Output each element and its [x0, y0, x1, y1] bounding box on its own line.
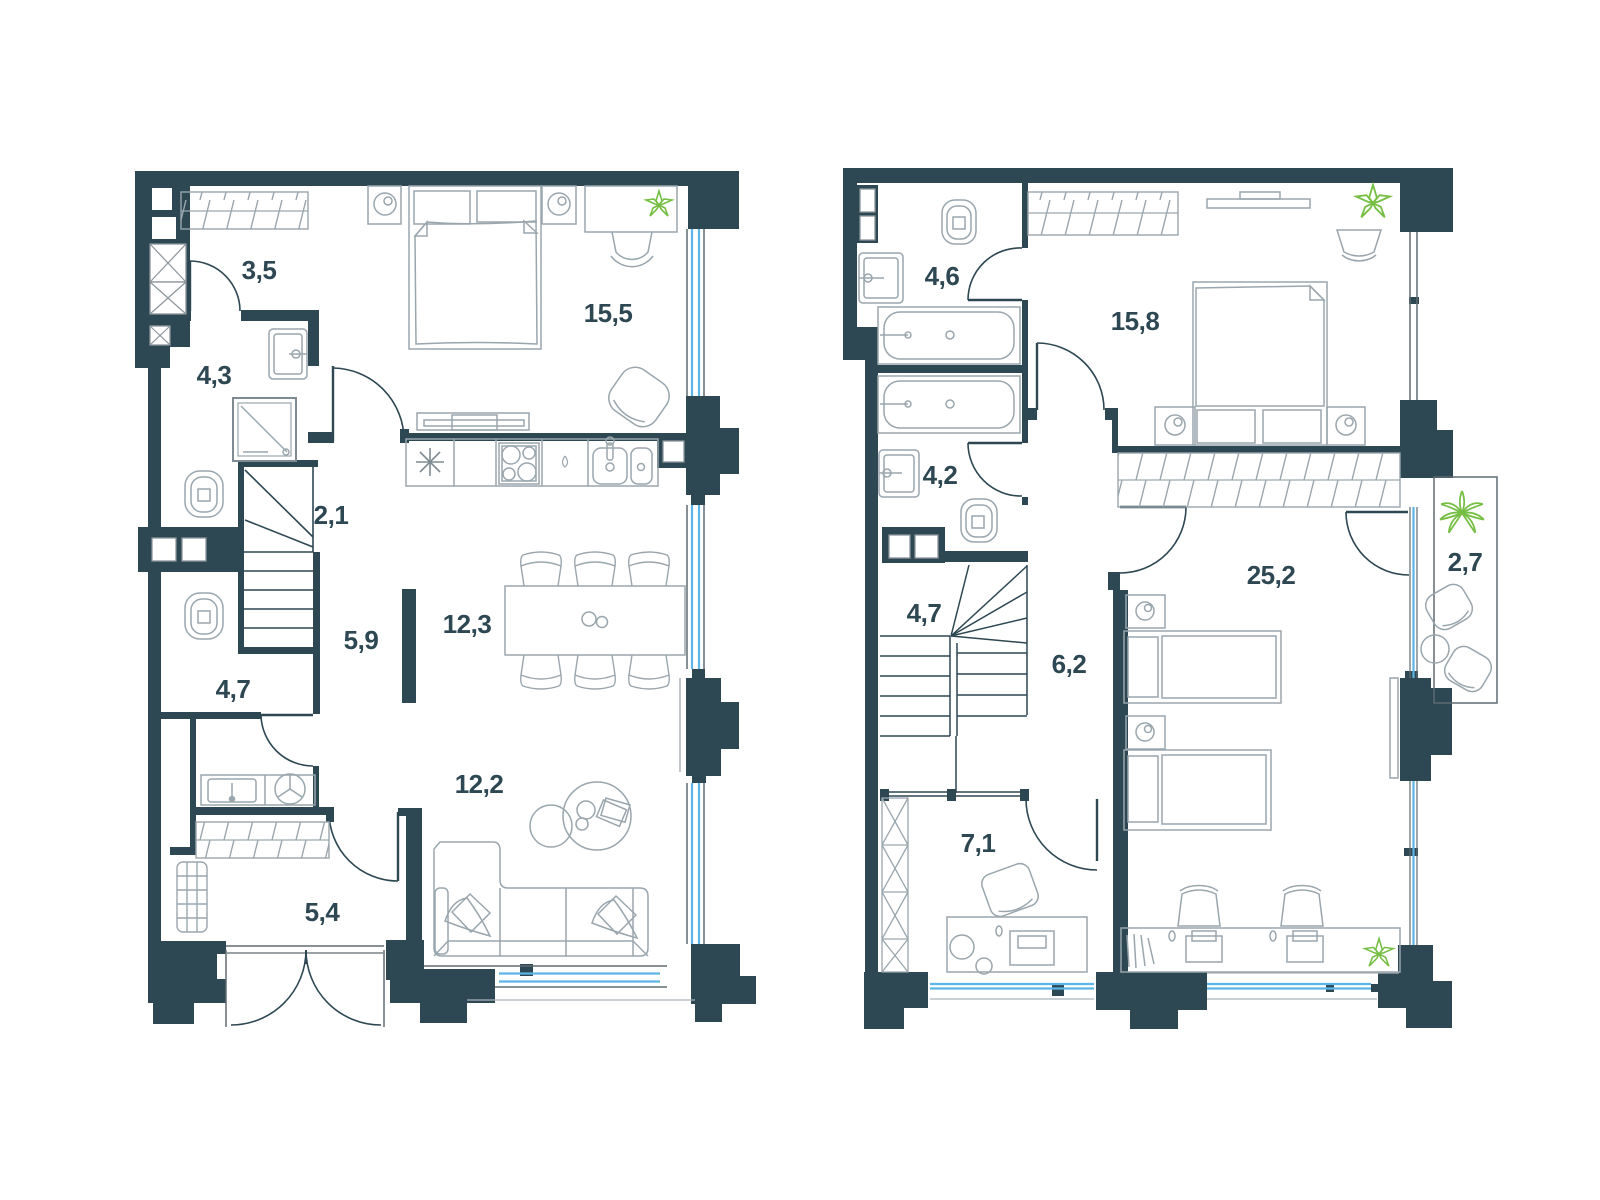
svg-text:25,2: 25,2 — [1247, 560, 1296, 590]
svg-text:4,7: 4,7 — [907, 598, 942, 628]
svg-text:5,9: 5,9 — [344, 625, 379, 655]
svg-text:15,5: 15,5 — [584, 298, 633, 328]
svg-text:5,4: 5,4 — [305, 897, 341, 927]
svg-text:3,5: 3,5 — [242, 255, 277, 285]
svg-text:15,8: 15,8 — [1111, 306, 1160, 336]
svg-text:4,7: 4,7 — [216, 674, 251, 704]
svg-text:12,2: 12,2 — [455, 769, 504, 799]
svg-text:6,2: 6,2 — [1052, 649, 1087, 679]
svg-text:2,1: 2,1 — [314, 500, 349, 530]
svg-text:12,3: 12,3 — [443, 609, 492, 639]
svg-text:2,7: 2,7 — [1448, 547, 1483, 577]
svg-text:4,3: 4,3 — [197, 360, 232, 390]
svg-text:4,6: 4,6 — [925, 261, 960, 291]
svg-text:4,2: 4,2 — [923, 460, 958, 490]
svg-text:7,1: 7,1 — [961, 828, 996, 858]
